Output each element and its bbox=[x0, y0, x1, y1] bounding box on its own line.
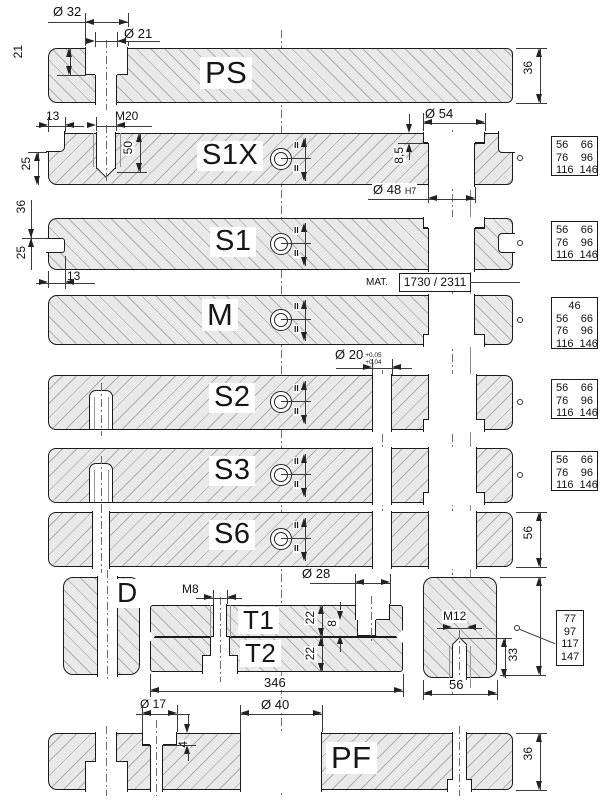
arrow bbox=[423, 119, 432, 125]
arrow bbox=[150, 687, 159, 693]
technical-drawing-mold-plates: Ø 32 Ø 21 21 PS 36 13 M20 50 25 S1X bbox=[0, 0, 600, 800]
hole-centerline bbox=[106, 125, 107, 183]
table-row: 5666 bbox=[556, 382, 593, 395]
ext-line bbox=[475, 187, 476, 203]
arrow bbox=[428, 195, 437, 201]
arrow bbox=[301, 300, 307, 309]
plate-label-s6: S6 bbox=[209, 520, 255, 550]
size-value: 116 bbox=[556, 407, 574, 420]
dim-value: Ø 48 bbox=[373, 182, 401, 197]
arrow bbox=[318, 637, 324, 646]
s6-small-hole bbox=[372, 511, 392, 569]
size-value: 66 bbox=[581, 139, 593, 152]
dim-line bbox=[340, 602, 341, 610]
dim-s1-lower: 25 bbox=[15, 245, 28, 260]
dim-s1x-counterbore-depth: 8,5 bbox=[393, 146, 406, 165]
ext-line bbox=[163, 745, 196, 746]
arrow bbox=[136, 133, 142, 142]
arrow bbox=[337, 635, 343, 644]
pin-edge-line bbox=[108, 470, 109, 502]
size-table-s3: 5666 7696 116146 bbox=[551, 451, 598, 491]
ext-line bbox=[390, 574, 391, 604]
arrow bbox=[536, 577, 542, 586]
size-value: 146 bbox=[580, 407, 598, 420]
dim-line bbox=[409, 152, 410, 160]
s1x-counterbore bbox=[423, 132, 485, 144]
ext-line bbox=[227, 590, 228, 604]
size-value: 56 bbox=[556, 313, 568, 326]
m-bottom-counterbore bbox=[423, 335, 485, 347]
plate-label-t1: T1 bbox=[238, 607, 279, 634]
size-table-s1x: 5666 7696 116146 bbox=[551, 136, 598, 176]
hole-centerline bbox=[220, 597, 221, 682]
ext-line bbox=[116, 117, 117, 131]
pf-center-hole bbox=[240, 732, 322, 792]
size-value: 96 bbox=[581, 325, 593, 338]
ext-line bbox=[516, 103, 547, 104]
size-value: 117 bbox=[561, 638, 579, 651]
ext-line bbox=[177, 705, 178, 732]
ext-line bbox=[428, 187, 429, 203]
plate-label-s2: S2 bbox=[209, 383, 255, 413]
s1x-edge-notch bbox=[46, 131, 65, 152]
hole-centerline bbox=[156, 720, 157, 796]
arrow bbox=[318, 605, 324, 614]
table-row: 7696 bbox=[556, 325, 593, 338]
arrow bbox=[355, 579, 364, 585]
arrow bbox=[501, 638, 507, 647]
size-value: 146 bbox=[580, 338, 598, 351]
counterbore-ledge bbox=[475, 227, 485, 228]
parallel-mark: II bbox=[293, 521, 300, 530]
ext-line bbox=[57, 75, 86, 76]
parallel-mark: II bbox=[293, 384, 300, 393]
arrow bbox=[536, 666, 542, 675]
size-table-m: 46 5666 7696 116146 bbox=[551, 297, 598, 349]
dim-line bbox=[240, 714, 322, 715]
parallel-mark: II bbox=[293, 249, 300, 258]
hole-centerline bbox=[101, 383, 102, 436]
dim-line bbox=[340, 644, 341, 652]
option-marker bbox=[517, 472, 523, 478]
size-value: 66 bbox=[581, 382, 593, 395]
table-row: 7696 bbox=[556, 152, 593, 165]
arrow bbox=[301, 332, 307, 341]
ext-line bbox=[150, 674, 151, 697]
size-value: 147 bbox=[561, 651, 579, 664]
dim-s6-thickness: 56 bbox=[522, 525, 535, 540]
size-value: 96 bbox=[581, 237, 593, 250]
size-value: 56 bbox=[556, 139, 568, 152]
hole-centerline bbox=[371, 596, 372, 642]
dim-pf-hole-dia: Ø 40 bbox=[260, 698, 290, 712]
pin-edge-line bbox=[94, 397, 95, 429]
size-value: 66 bbox=[581, 224, 593, 237]
plate-label-s1x: S1X bbox=[197, 141, 263, 171]
table-row: 116146 bbox=[556, 407, 593, 420]
leader-line bbox=[281, 319, 311, 320]
centering-symbol-inner bbox=[274, 237, 288, 251]
arrow bbox=[116, 122, 125, 128]
plate-label-d: D bbox=[112, 579, 143, 608]
dim-line bbox=[310, 583, 390, 584]
leader-line bbox=[470, 282, 520, 283]
centering-symbol-inner bbox=[274, 395, 288, 409]
dim-t1-thickness: 22 bbox=[304, 610, 317, 625]
arrow bbox=[394, 687, 403, 693]
dim-s1x-ledge-height: 25 bbox=[20, 156, 33, 171]
ext-line bbox=[355, 574, 356, 604]
leader-line bbox=[281, 401, 311, 402]
ext-line bbox=[240, 705, 241, 732]
arrow bbox=[301, 518, 307, 527]
s3-through-hole bbox=[428, 447, 477, 494]
hole-centerline bbox=[106, 726, 107, 796]
ext-line bbox=[516, 48, 547, 49]
option-marker bbox=[517, 317, 523, 323]
arrow bbox=[301, 381, 307, 390]
centering-symbol-inner bbox=[274, 152, 288, 166]
dim-line bbox=[409, 114, 410, 124]
s3-small-hole bbox=[372, 447, 392, 505]
s2-bottom-counterbore bbox=[423, 420, 485, 432]
dim-block-thread: M12 bbox=[442, 610, 467, 623]
option-marker bbox=[517, 240, 523, 246]
parallel-mark: II bbox=[293, 457, 300, 466]
arrow bbox=[337, 611, 343, 620]
centering-symbol-inner bbox=[274, 532, 288, 546]
pin-edge-line bbox=[108, 397, 109, 429]
arrow bbox=[240, 710, 249, 716]
arrow bbox=[85, 19, 94, 25]
size-value: 116 bbox=[556, 249, 574, 262]
table-row: 147 bbox=[561, 651, 579, 664]
leader-line bbox=[520, 629, 556, 644]
t1-pocket-step bbox=[357, 620, 376, 636]
hole-centerline bbox=[106, 40, 107, 110]
parallel-mark: II bbox=[293, 141, 300, 150]
size-value: 46 bbox=[568, 300, 580, 313]
option-marker bbox=[517, 399, 523, 405]
parallel-mark: II bbox=[293, 407, 300, 416]
table-row: 7696 bbox=[556, 395, 593, 408]
ext-line bbox=[142, 705, 143, 732]
size-table-s2: 5666 7696 116146 bbox=[551, 379, 598, 419]
leader-line bbox=[281, 538, 311, 539]
arrow bbox=[301, 415, 307, 424]
counterbore-ledge bbox=[85, 74, 95, 75]
table-row: 5666 bbox=[556, 224, 593, 237]
arrow bbox=[536, 558, 542, 567]
parallel-mark: II bbox=[293, 544, 300, 553]
arrow bbox=[301, 138, 307, 147]
ext-line bbox=[22, 238, 47, 239]
dim-line bbox=[188, 753, 189, 761]
s2-through-hole bbox=[428, 374, 477, 421]
arrow bbox=[28, 238, 34, 247]
table-row: 5666 bbox=[556, 313, 593, 326]
ext-line bbox=[28, 152, 47, 153]
dim-t-length: 346 bbox=[263, 676, 287, 690]
size-value: 56 bbox=[556, 382, 568, 395]
size-value: 76 bbox=[556, 467, 568, 480]
dim-t2-thickness: 22 bbox=[304, 646, 317, 661]
dim-line bbox=[368, 199, 475, 200]
s6-through-hole bbox=[428, 511, 477, 569]
thread-line bbox=[449, 646, 450, 679]
dim-value: Ø 20 bbox=[335, 347, 363, 362]
s1-counterbore bbox=[423, 217, 485, 229]
dim-s1x-hole-dia: Ø 48 H7 bbox=[372, 183, 417, 197]
arrow bbox=[117, 38, 126, 44]
arrow bbox=[467, 624, 476, 630]
t1-counterbore-pocket bbox=[355, 604, 390, 620]
plate-label-s1: S1 bbox=[210, 227, 256, 257]
size-value: 56 bbox=[556, 224, 568, 237]
hole-centerline bbox=[459, 726, 460, 796]
counterbore-ledge bbox=[117, 74, 128, 75]
arrow bbox=[142, 710, 151, 716]
thread-line bbox=[93, 133, 94, 167]
dim-s1x-hole-fit: H7 bbox=[405, 186, 417, 196]
arrow bbox=[406, 143, 412, 152]
table-row: 7696 bbox=[556, 237, 593, 250]
ext-line bbox=[485, 113, 486, 131]
table-row: 5666 bbox=[556, 139, 593, 152]
parallel-mark: II bbox=[293, 302, 300, 311]
ps-counterbore bbox=[85, 47, 128, 76]
arrow bbox=[301, 257, 307, 266]
arrow bbox=[318, 663, 324, 672]
arrow bbox=[66, 48, 72, 57]
ext-line bbox=[398, 143, 424, 144]
arrow bbox=[443, 624, 452, 630]
s1x-fit-hole bbox=[428, 143, 475, 187]
plate-label-t2: T2 bbox=[240, 640, 281, 667]
dim-s1x-thread-depth: 50 bbox=[122, 140, 135, 155]
dim-block-width: 56 bbox=[448, 678, 464, 692]
material-value-box: 1730 / 2311 bbox=[399, 273, 471, 292]
ext-line bbox=[423, 113, 424, 131]
s2-small-hole bbox=[372, 374, 392, 432]
arrow bbox=[301, 172, 307, 181]
parallel-mark: II bbox=[293, 325, 300, 334]
arrow bbox=[301, 552, 307, 561]
dim-t-pocket-depth: 8 bbox=[326, 619, 339, 628]
material-label: MAT. bbox=[365, 277, 389, 288]
ext-line bbox=[48, 271, 49, 288]
ext-line bbox=[48, 117, 49, 132]
arrow bbox=[536, 512, 542, 521]
thread-line bbox=[210, 605, 211, 637]
plate-label-ps: PS bbox=[200, 57, 252, 89]
size-value: 76 bbox=[556, 325, 568, 338]
arrow bbox=[501, 669, 507, 678]
arrow bbox=[301, 488, 307, 497]
size-value: 76 bbox=[556, 237, 568, 250]
size-table-stack: 77 97 117 147 bbox=[556, 610, 584, 666]
size-value: 66 bbox=[581, 313, 593, 326]
s1-edge-notch bbox=[46, 238, 65, 253]
ext-line bbox=[516, 512, 547, 513]
arrow bbox=[301, 454, 307, 463]
dim-ps-counterbore-depth: 21 bbox=[12, 44, 25, 59]
arrow bbox=[392, 364, 401, 370]
counterbore-ledge bbox=[142, 744, 150, 745]
table-row: 116146 bbox=[556, 479, 593, 492]
size-value: 96 bbox=[581, 152, 593, 165]
centering-symbol-inner bbox=[274, 313, 288, 327]
dim-line bbox=[423, 694, 497, 695]
plate-label-s3: S3 bbox=[209, 456, 255, 486]
dim-block-depth: 33 bbox=[507, 647, 520, 662]
counterbore-ledge bbox=[475, 142, 485, 143]
arrow bbox=[227, 594, 236, 600]
centering-symbol-inner bbox=[274, 468, 288, 482]
size-value: 146 bbox=[580, 164, 598, 177]
size-value: 76 bbox=[556, 152, 568, 165]
arrow bbox=[318, 628, 324, 637]
size-value: 77 bbox=[564, 613, 576, 626]
dim-line bbox=[540, 577, 541, 675]
table-row: 46 bbox=[556, 300, 593, 313]
arrow bbox=[301, 223, 307, 232]
dim-line bbox=[95, 41, 160, 42]
hole-centerline bbox=[101, 505, 102, 573]
arrow bbox=[423, 690, 432, 696]
ext-line bbox=[516, 567, 547, 568]
table-row: 117 bbox=[561, 638, 579, 651]
pf-bottom-counterbore bbox=[85, 762, 128, 792]
ext-line bbox=[95, 32, 96, 47]
size-value: 56 bbox=[556, 454, 568, 467]
leader-line bbox=[281, 474, 311, 475]
dim-ps-thickness: 36 bbox=[522, 60, 535, 75]
plate-label-m: M bbox=[202, 299, 238, 331]
table-row: 97 bbox=[561, 626, 579, 639]
ext-line bbox=[403, 674, 404, 697]
leader-line bbox=[281, 158, 311, 159]
ext-line bbox=[117, 32, 118, 47]
table-row: 116146 bbox=[556, 164, 593, 177]
arrow bbox=[406, 124, 412, 133]
ext-line bbox=[322, 705, 323, 732]
thread-line bbox=[230, 605, 231, 637]
s3-bottom-counterbore bbox=[423, 493, 485, 505]
dim-line bbox=[150, 691, 403, 692]
arrow bbox=[184, 724, 190, 733]
m-through-hole bbox=[428, 294, 475, 336]
size-value: 66 bbox=[581, 454, 593, 467]
arrow bbox=[65, 279, 74, 285]
arrow bbox=[34, 152, 40, 161]
arrow bbox=[536, 94, 542, 103]
table-row: 7696 bbox=[556, 467, 593, 480]
parallel-mark: II bbox=[293, 226, 300, 235]
size-value: 97 bbox=[564, 626, 576, 639]
size-value: 146 bbox=[580, 249, 598, 262]
dim-ps-hole-dia: Ø 21 bbox=[123, 27, 153, 41]
table-row: 5666 bbox=[556, 454, 593, 467]
thread-line bbox=[470, 646, 471, 679]
ext-line bbox=[65, 117, 66, 132]
dim-s1-upper: 36 bbox=[15, 199, 28, 214]
ext-line bbox=[65, 256, 66, 289]
size-value: 116 bbox=[556, 164, 574, 177]
dim-t-counterbore-dia: Ø 28 bbox=[301, 567, 331, 581]
option-marker bbox=[517, 155, 523, 161]
s1x-right-step bbox=[498, 131, 515, 153]
arrow bbox=[536, 48, 542, 57]
ext-line bbox=[516, 733, 547, 734]
arrow bbox=[536, 781, 542, 790]
s1-fit-hole bbox=[428, 228, 475, 272]
hole-centerline bbox=[107, 570, 108, 682]
dim-pf-thickness: 36 bbox=[522, 746, 535, 761]
plate-label-pf: PF bbox=[326, 742, 377, 774]
table-row: 116146 bbox=[556, 338, 593, 351]
dim-ps-counterbore-dia: Ø 32 bbox=[52, 5, 82, 19]
ext-line bbox=[117, 172, 147, 173]
table-row: 77 bbox=[561, 613, 579, 626]
parallel-mark: II bbox=[293, 164, 300, 173]
parallel-mark: II bbox=[293, 480, 300, 489]
leader-line bbox=[281, 243, 311, 244]
hole-centerline bbox=[101, 456, 102, 509]
s1-right-notch bbox=[498, 233, 515, 253]
size-value: 116 bbox=[556, 479, 574, 492]
arrow bbox=[65, 122, 74, 128]
size-value: 146 bbox=[580, 479, 598, 492]
size-value: 116 bbox=[556, 338, 574, 351]
ext-line bbox=[516, 790, 547, 791]
size-table-s1: 5666 7696 116146 bbox=[551, 221, 598, 261]
arrow bbox=[34, 176, 40, 185]
pin-edge-line bbox=[94, 470, 95, 502]
size-value: 96 bbox=[581, 395, 593, 408]
size-value: 96 bbox=[581, 467, 593, 480]
table-row: 116146 bbox=[556, 249, 593, 262]
ext-line bbox=[213, 590, 214, 604]
dim-m-hole-dia: Ø 20+0,05+0,04 bbox=[334, 348, 383, 367]
arrow bbox=[536, 733, 542, 742]
counterbore-ledge bbox=[376, 619, 390, 620]
ext-line bbox=[96, 117, 97, 131]
size-value: 76 bbox=[556, 395, 568, 408]
dim-t-thread: M8 bbox=[181, 583, 200, 596]
arrow bbox=[488, 690, 497, 696]
